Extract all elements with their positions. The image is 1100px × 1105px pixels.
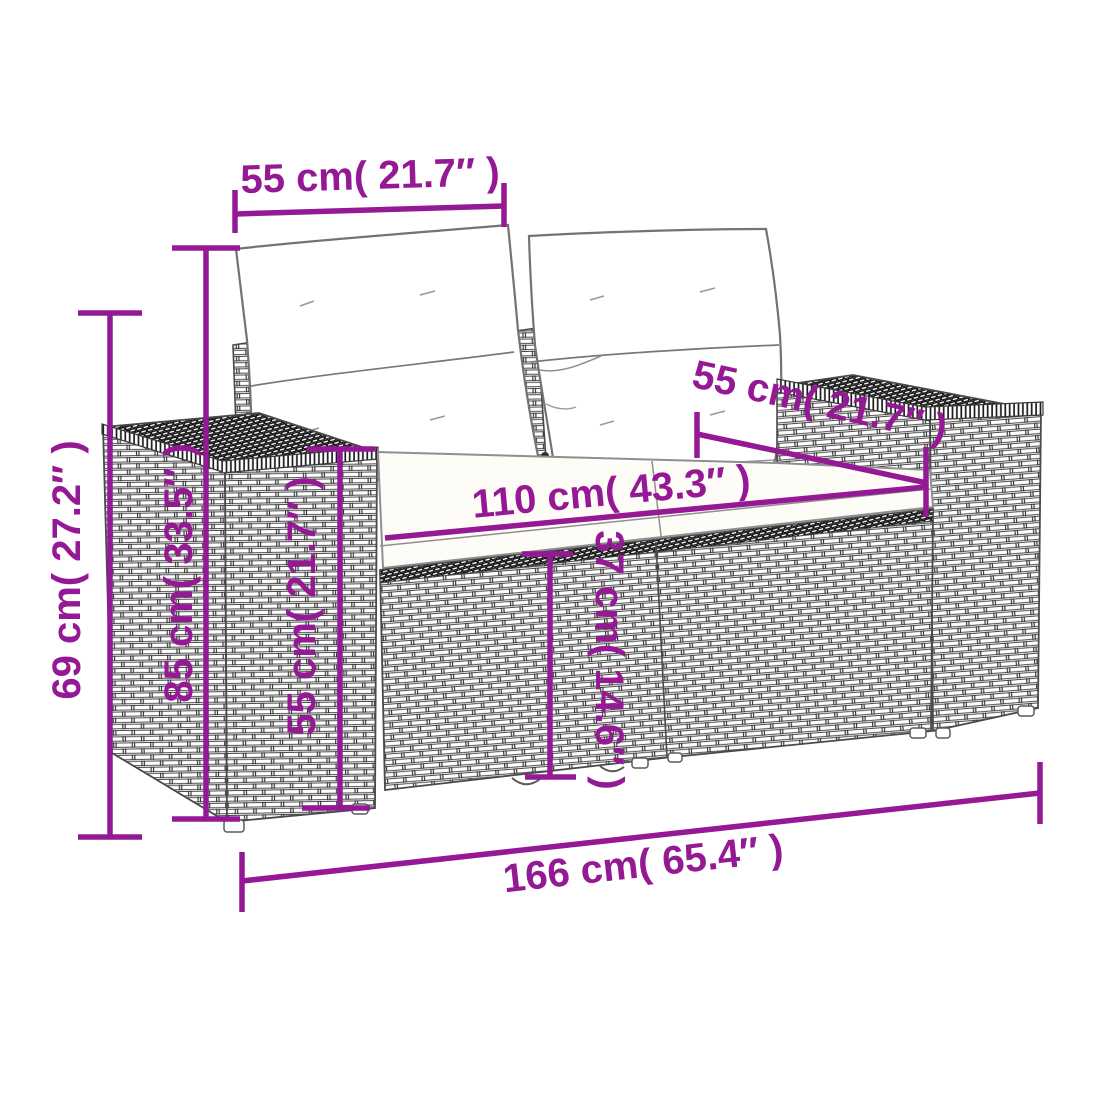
svg-text:55 cm( 21.7″ ): 55 cm( 21.7″ )	[240, 150, 501, 202]
svg-text:85 cm( 33.5″ ): 85 cm( 33.5″ )	[157, 443, 201, 702]
svg-text:55 cm( 21.7″ ): 55 cm( 21.7″ )	[280, 476, 324, 735]
svg-text:69 cm( 27.2″ ): 69 cm( 27.2″ )	[45, 440, 89, 699]
svg-text:37 cm( 14.6″ ): 37 cm( 14.6″ )	[587, 530, 631, 789]
